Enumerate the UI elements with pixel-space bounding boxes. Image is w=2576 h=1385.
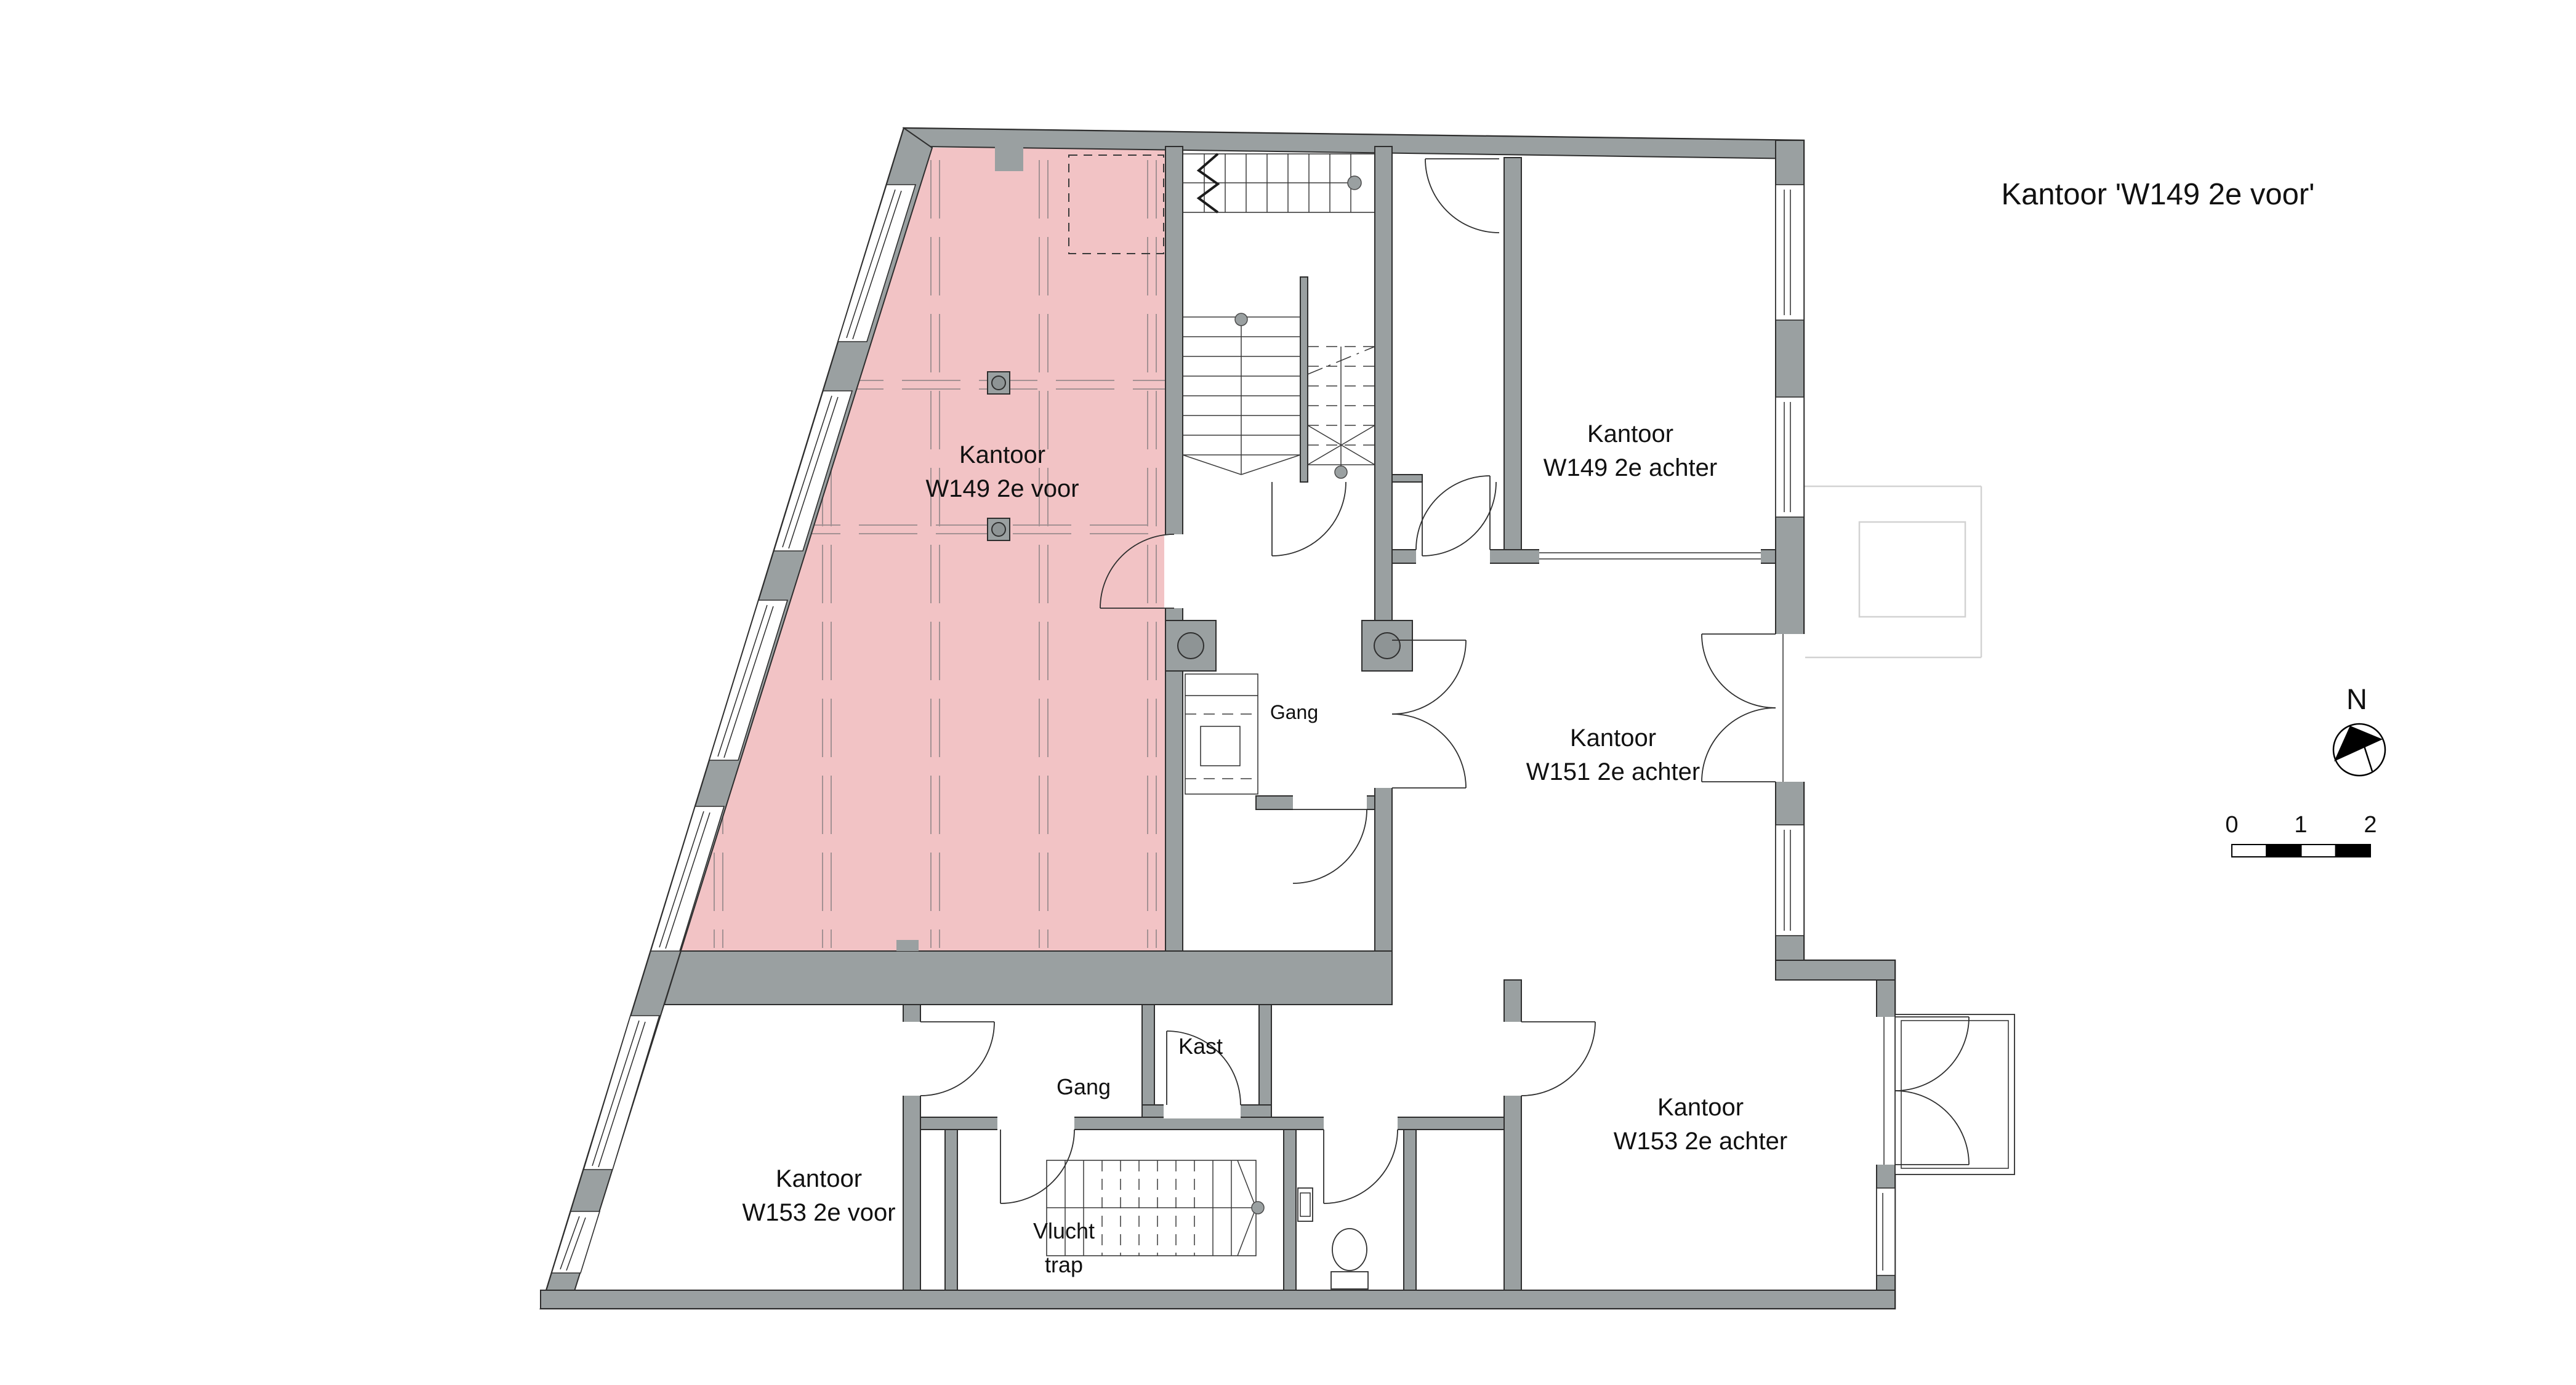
- wall-tab-band: [896, 940, 919, 951]
- room-label-w149-achter-2: W149 2e achter: [1544, 454, 1717, 481]
- room-label-w149-achter-1: Kantoor: [1587, 420, 1673, 448]
- wall-stair-middle: [1300, 277, 1308, 482]
- floor-plan-page: Kantoor W149 2e voor Kantoor W149 2e ach…: [0, 0, 2576, 1385]
- plan-title: Kantoor 'W149 2e voor': [2002, 178, 2315, 211]
- scale-tick-1: 1: [2294, 812, 2307, 838]
- toilet-tank: [1331, 1272, 1368, 1289]
- window-w153a: [1877, 1188, 1895, 1275]
- north-arrow: N: [2333, 683, 2385, 776]
- room-label-w153-voor-2: W153 2e voor: [742, 1199, 895, 1226]
- scale-bar: 0 1 2: [2225, 812, 2377, 857]
- wall-band-middle: [664, 951, 1392, 1005]
- scale-tick-2: 2: [2364, 812, 2377, 838]
- room-label-w151-achter-2: W151 2e achter: [1526, 758, 1700, 785]
- room-label-w149-voor-1: Kantoor: [959, 441, 1045, 468]
- wall-wc-west: [1284, 1130, 1296, 1290]
- wall-kast-east: [1259, 1005, 1271, 1117]
- room-label-kast: Kast: [1178, 1034, 1223, 1059]
- floor-plan-svg: Kantoor W149 2e voor Kantoor W149 2e ach…: [0, 0, 2576, 1385]
- wall-kast-west: [1142, 1005, 1154, 1117]
- wall-stair-stub: [1392, 475, 1422, 482]
- wall-vlucht-west: [945, 1130, 957, 1290]
- north-label: N: [2346, 683, 2367, 715]
- room-label-w153-voor-1: Kantoor: [776, 1165, 862, 1192]
- room-label-w153-achter-2: W153 2e achter: [1614, 1128, 1787, 1155]
- scale-tick-0: 0: [2225, 812, 2238, 838]
- toilet-bowl: [1332, 1229, 1367, 1271]
- room-label-gang-lower: Gang: [1057, 1074, 1111, 1099]
- wall-bottom: [541, 1290, 1895, 1309]
- neighbour-ghost-outline: [1804, 486, 1981, 657]
- room-label-vluchttrap-1: Vlucht: [1033, 1218, 1095, 1243]
- wall-tab-top: [995, 147, 1023, 171]
- room-label-gang-central: Gang: [1270, 701, 1318, 723]
- wall-stairwell-east: [1375, 147, 1392, 951]
- wall-wc-east: [1404, 1130, 1416, 1290]
- wall-lift-strip-east: [1504, 158, 1521, 550]
- compass-tail: [2363, 742, 2372, 771]
- wall-step-right: [1776, 960, 1895, 980]
- room-label-w149-voor-2: W149 2e voor: [925, 475, 1079, 502]
- room-label-w151-achter-1: Kantoor: [1570, 725, 1656, 752]
- balcony: [1895, 1014, 2015, 1174]
- room-label-vluchttrap-2: trap: [1045, 1252, 1083, 1277]
- room-label-w153-achter-1: Kantoor: [1657, 1094, 1744, 1121]
